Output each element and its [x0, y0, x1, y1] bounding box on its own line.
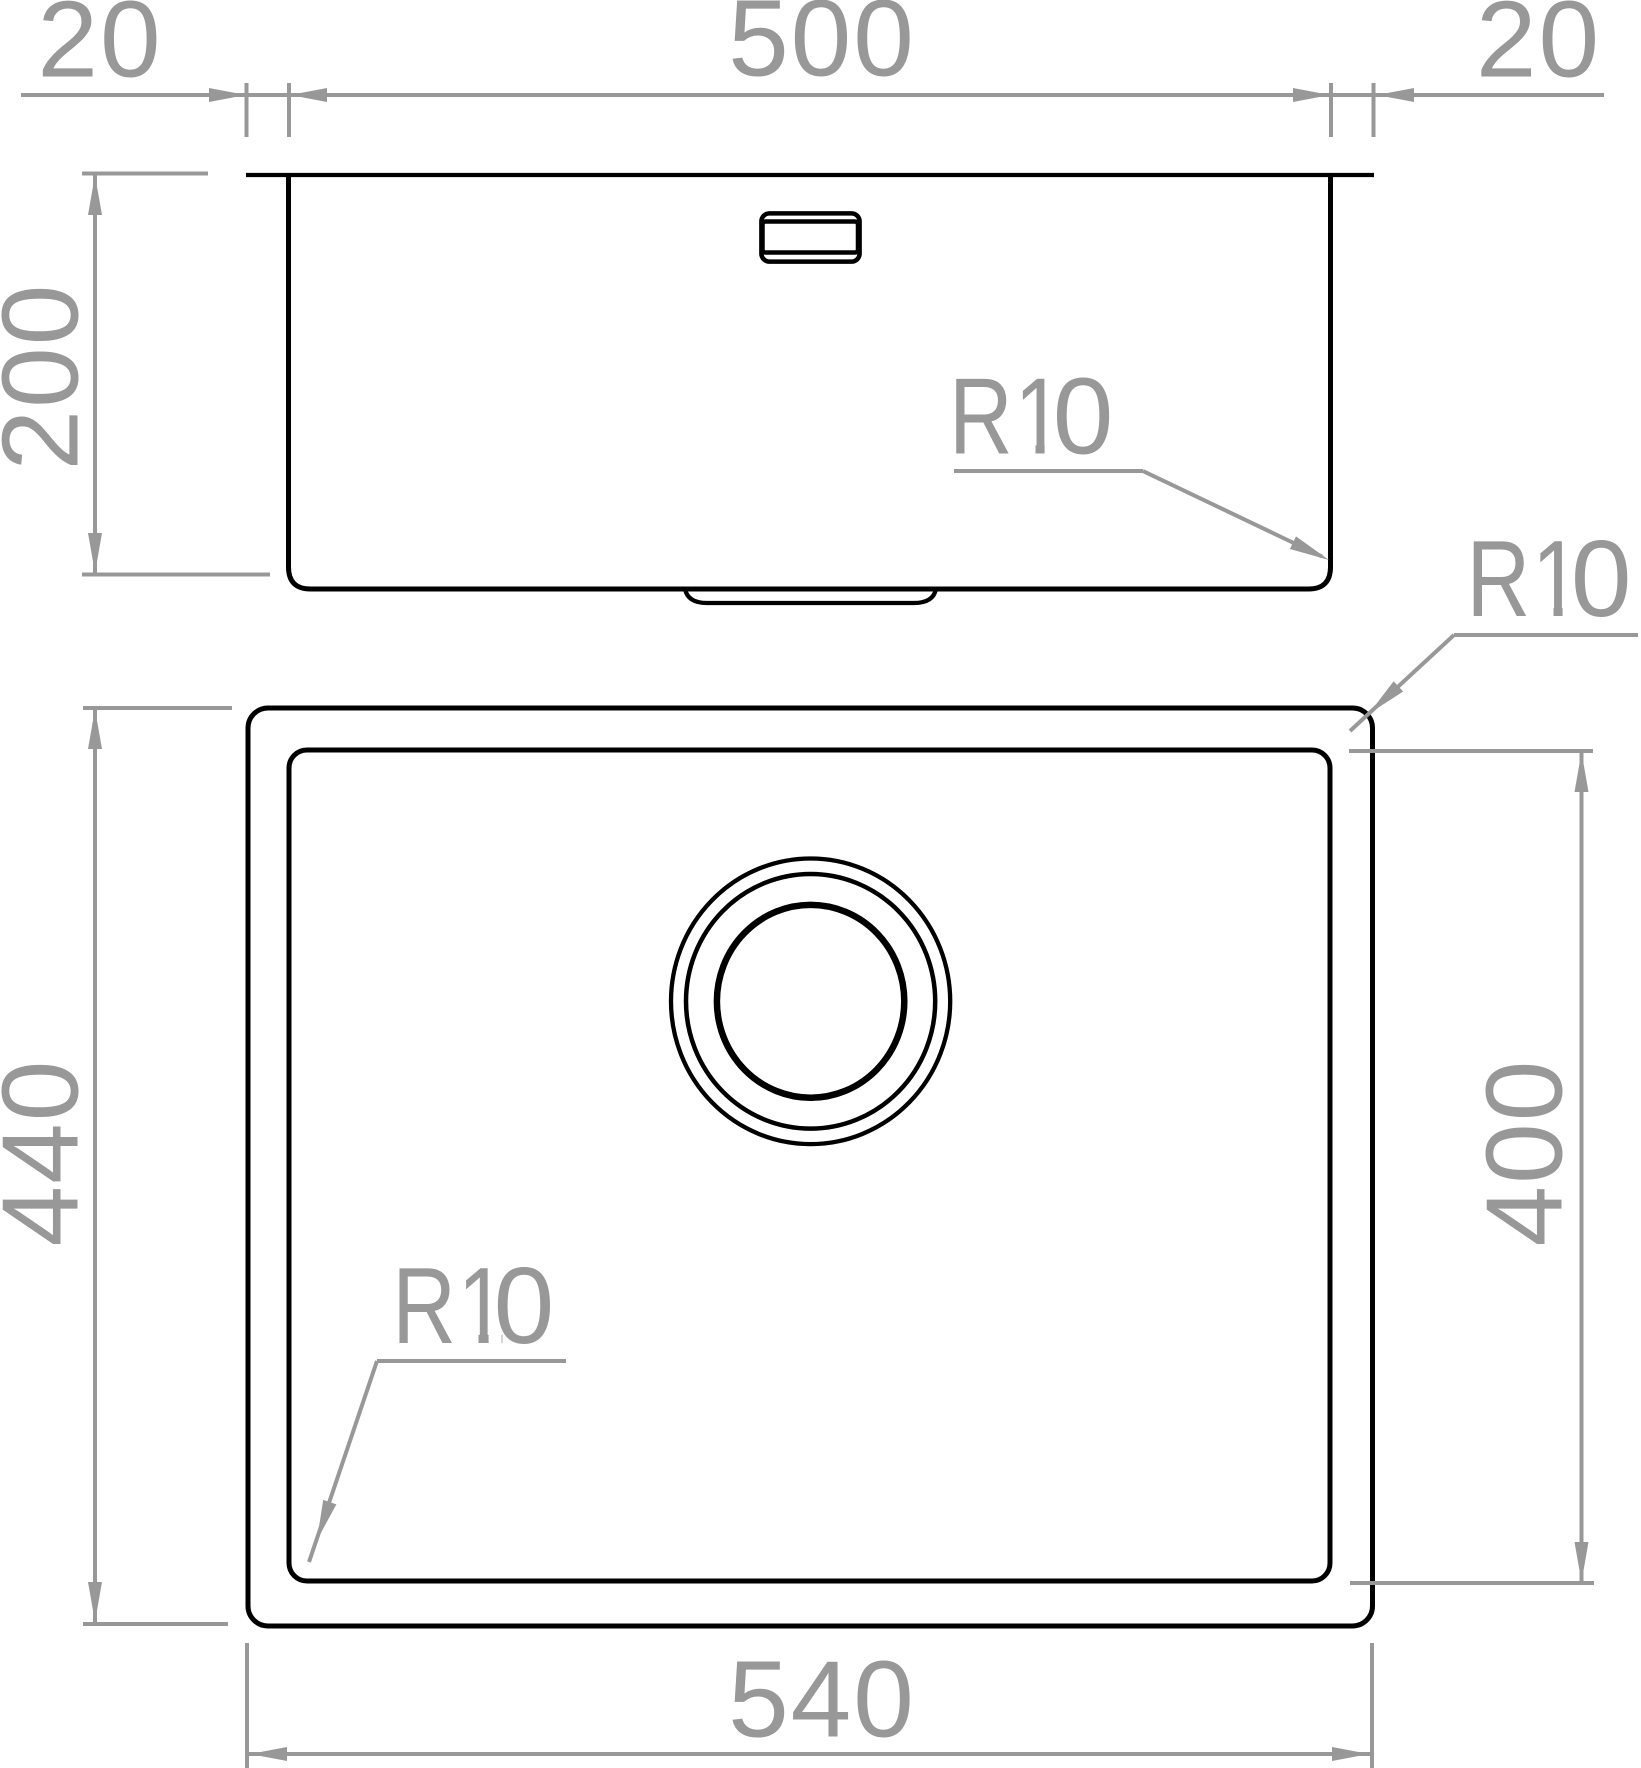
svg-text:400: 400 — [1464, 1059, 1586, 1247]
svg-text:540: 540 — [728, 1639, 916, 1761]
svg-text:0: 0 — [1053, 356, 1116, 478]
svg-text:20: 20 — [37, 0, 162, 101]
svg-text:R1: R1 — [392, 1245, 508, 1367]
svg-text:0: 0 — [494, 1245, 557, 1367]
svg-text:500: 500 — [728, 0, 916, 100]
svg-text:R1: R1 — [1467, 518, 1583, 640]
svg-text:20: 20 — [1476, 0, 1601, 101]
svg-text:R1: R1 — [949, 356, 1065, 478]
svg-text:440: 440 — [0, 1059, 102, 1247]
svg-text:200: 200 — [0, 283, 102, 471]
svg-text:0: 0 — [1571, 518, 1634, 640]
